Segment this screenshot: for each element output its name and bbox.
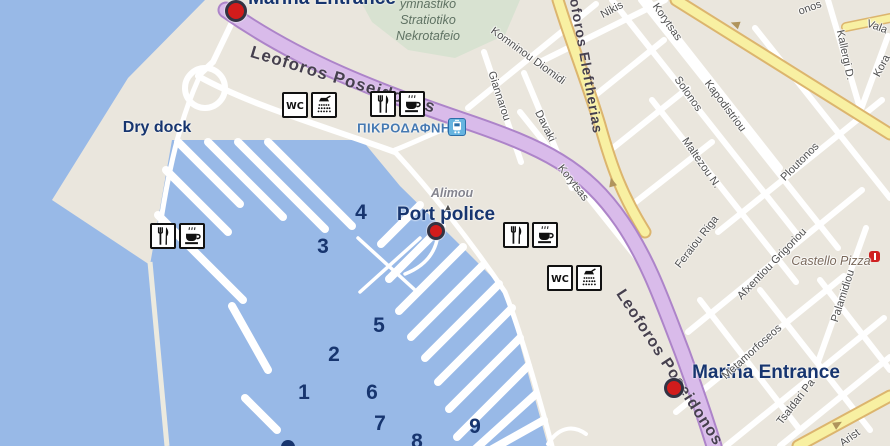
restaurant-icon (503, 222, 529, 248)
pier-number-9: 9 (469, 415, 481, 439)
one-way-arrow-icon (729, 19, 740, 30)
street-label: Solonos (672, 74, 705, 113)
pikrodafni-station-label: ΠΙΚΡΟΔΑΦΝΗ (357, 121, 451, 136)
svg-text:WC: WC (286, 101, 304, 112)
street-label: Kallergi D. (834, 29, 856, 81)
one-way-arrow-icon (832, 418, 844, 429)
street-label: onos (797, 0, 824, 18)
tram-station-icon (448, 118, 466, 136)
marina-entrance-bottom-marker (664, 378, 684, 398)
street-label: Feraiou Riga (673, 213, 721, 270)
street-label: Komninou Diomidi (488, 25, 567, 87)
street-label: ▲ (444, 202, 453, 212)
street-label: Giannarou (485, 70, 512, 123)
shower-icon (576, 265, 602, 291)
wc-icon: WC (547, 265, 573, 291)
street-label: Arist (838, 427, 863, 446)
pier-number-8: 8 (411, 430, 423, 446)
wc-icon: WC (282, 92, 308, 118)
restaurant-poi-icon (869, 251, 880, 262)
pier-number-2: 2 (328, 343, 340, 367)
pier-number-5: 5 (373, 314, 385, 338)
cemetery-line-2: Stratiotiko (396, 12, 460, 28)
marina-entrance-bottom-label: Marina Entrance (692, 362, 840, 384)
street-label: Leoforos Eleftherias (564, 0, 607, 135)
coffee-icon (179, 223, 205, 249)
svg-text:WC: WC (551, 274, 569, 285)
street-label: Korytsas (650, 1, 684, 43)
port-police-marker (427, 222, 445, 240)
street-label: Palamidiou (829, 268, 857, 323)
street-label: Maltezou N. (679, 136, 723, 191)
map-overlay: Marina Entrance Dry dock Port police Mar… (0, 0, 890, 446)
street-label: Alimou (431, 186, 473, 200)
coffee-icon (532, 222, 558, 248)
cemetery-line-3: Nekrotafeio (396, 28, 460, 44)
cemetery-label: ymnastiko Stratiotiko Nekrotafeio (396, 0, 460, 44)
pier-number-4: 4 (355, 201, 367, 225)
street-label: Castello Pizza (791, 254, 870, 268)
pier-number-3: 3 (317, 235, 329, 259)
pier-number-7: 7 (374, 412, 386, 436)
pier-number-6: 6 (366, 381, 378, 405)
pier-number-1: 1 (298, 381, 310, 405)
street-label: Davaki (532, 108, 558, 143)
street-label: Korytsas (555, 162, 591, 203)
street-label: Vala (865, 18, 889, 37)
street-label: Ploutonos (778, 140, 821, 183)
street-label: Tsaldari Pa (775, 377, 818, 427)
marina-entrance-top-label: Marina Entrance (248, 0, 396, 10)
shower-icon (311, 92, 337, 118)
dry-dock-label: Dry dock (123, 119, 191, 137)
marina-entrance-top-marker (225, 0, 247, 22)
street-label: Kapodistriou (702, 78, 748, 134)
cemetery-line-1: ymnastiko (396, 0, 460, 12)
coffee-icon (399, 91, 425, 117)
street-label: Kora (871, 53, 890, 79)
one-way-arrow-icon (607, 177, 617, 188)
street-label: Nikis (599, 0, 626, 21)
marina-map[interactable]: Marina Entrance Dry dock Port police Mar… (0, 0, 890, 446)
restaurant-icon (370, 91, 396, 117)
restaurant-icon (150, 223, 176, 249)
clipped-number (281, 440, 295, 446)
